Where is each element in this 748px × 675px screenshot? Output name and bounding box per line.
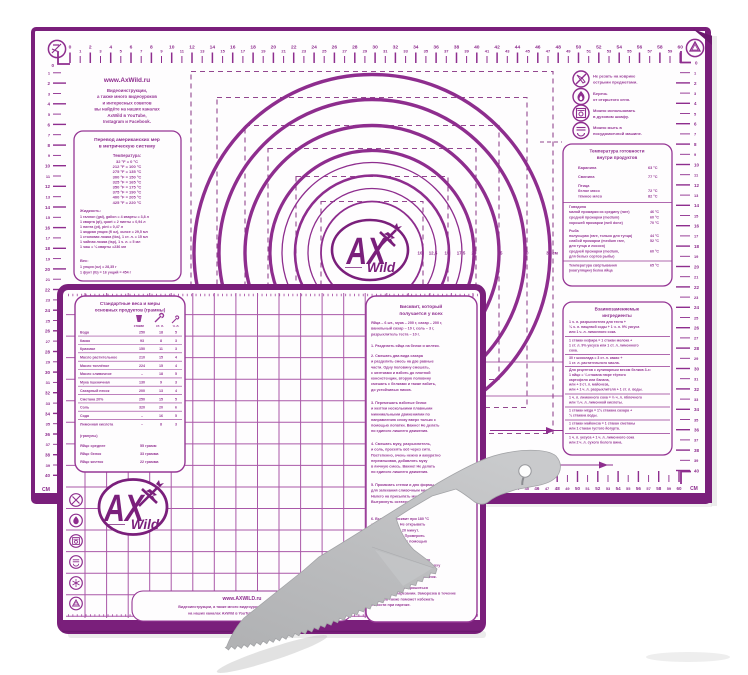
svg-text:в духовом шкафу.: в духовом шкафу. (593, 114, 629, 119)
svg-text:24: 24 (694, 305, 700, 310)
svg-text:Масло растительное: Масло растительное (80, 356, 117, 360)
svg-text:а также много видеоуроков: а также много видеоуроков (97, 94, 157, 99)
svg-text:22 грамма: 22 грамма (140, 460, 159, 464)
svg-text:–: – (141, 422, 143, 426)
svg-text:20: 20 (159, 406, 163, 410)
svg-text:или + 3 ст. л. майонеза,: или + 3 ст. л. майонеза, (569, 383, 609, 387)
svg-text:Перевод американских мер: Перевод американских мер (94, 137, 160, 143)
svg-text:44 °C: 44 °C (650, 234, 659, 238)
svg-text:4: 4 (109, 45, 112, 51)
svg-text:210: 210 (139, 356, 145, 360)
svg-text:44: 44 (515, 45, 521, 51)
svg-text:17,5: 17,5 (457, 251, 466, 256)
svg-text:55 грамм: 55 грамм (140, 444, 157, 448)
svg-text:15: 15 (159, 364, 163, 368)
svg-text:49: 49 (566, 49, 571, 54)
svg-text:72 °C: 72 °C (648, 189, 658, 193)
svg-text:15: 15 (159, 356, 163, 360)
svg-text:Яйцо среднее: Яйцо среднее (80, 444, 106, 448)
svg-text:до устойчивых пиков.: до устойчивых пиков. (371, 388, 412, 392)
svg-text:1 стакан майонеза = 1 стакан с: 1 стакан майонеза = 1 стакан сметаны (569, 422, 635, 426)
svg-text:разрыхлитель теста – 10 г.: разрыхлитель теста – 10 г. (371, 332, 420, 336)
svg-text:60 °C: 60 °C (650, 250, 659, 254)
svg-text:36: 36 (433, 45, 439, 51)
svg-text:сока.: сока. (569, 348, 578, 352)
svg-text:32: 32 (694, 387, 700, 392)
svg-text:для тунца и лосося): для тунца и лосося) (569, 244, 606, 248)
svg-text:16: 16 (230, 45, 236, 51)
svg-text:ч. л.: ч. л. (173, 324, 180, 328)
svg-text:или + 1 ч. л. разрыхлителя + 1: или + 1 ч. л. разрыхлителя + 1 ст. л. во… (569, 388, 643, 392)
svg-text:10: 10 (418, 251, 423, 256)
svg-text:Говядина: Говядина (569, 205, 587, 209)
svg-text:–: – (141, 372, 143, 376)
svg-text:12: 12 (45, 184, 51, 189)
svg-text:помощью лопатки. Важно! Не дел: помощью лопатки. Важно! Не делать (371, 424, 440, 428)
svg-text:или 1 ч. л. лимонного сока.: или 1 ч. л. лимонного сока. (569, 330, 616, 334)
svg-text:26: 26 (694, 326, 700, 331)
svg-text:13: 13 (159, 389, 163, 393)
svg-text:Температура готовности: Температура готовности (589, 149, 644, 154)
svg-text:32: 32 (45, 391, 51, 396)
svg-text:1 галлон (gal), gallon = 4 ква: 1 галлон (gal), gallon = 4 кварты = 3,8 … (80, 215, 150, 219)
svg-text:47: 47 (546, 49, 551, 54)
svg-text:53: 53 (607, 49, 612, 54)
svg-text:с желтками и взбить до плотной: с желтками и взбить до плотной (371, 371, 431, 375)
svg-text:AxWild в YouTube,: AxWild в YouTube, (107, 113, 146, 118)
svg-text:ингредиенты: ингредиенты (602, 313, 632, 318)
svg-text:Стандартные веса и меры: Стандартные веса и меры (100, 301, 160, 306)
svg-text:33 грамма: 33 грамма (140, 452, 159, 456)
svg-text:5: 5 (175, 397, 177, 401)
svg-text:10: 10 (169, 45, 175, 51)
svg-text:Свинина: Свинина (578, 175, 595, 179)
svg-text:43: 43 (505, 49, 510, 54)
svg-text:77 °C: 77 °C (648, 175, 658, 179)
svg-text:ни единого лишнего движения.: ни единого лишнего движения. (371, 429, 428, 433)
svg-text:полусырая (rare, только для ту: полусырая (rare, только для тунца) (569, 234, 633, 238)
svg-text:1 чайная ложка (tsp), 1 ч. л.: 1 чайная ложка (tsp), 1 ч. л. = 5 мл (80, 240, 141, 244)
svg-text:Постепенно, очень нежно и акку: Постепенно, очень нежно и аккуратно (371, 453, 441, 457)
svg-text:Птица: Птица (578, 184, 590, 188)
svg-text:посудомоечной машине.: посудомоечной машине. (593, 131, 642, 136)
svg-text:18: 18 (159, 372, 163, 376)
svg-text:31: 31 (383, 49, 388, 54)
svg-text:средней прожарки (medium): средней прожарки (medium) (569, 216, 620, 220)
svg-text:15: 15 (220, 49, 225, 54)
svg-text:34: 34 (45, 411, 51, 416)
svg-text:и разделить смесь на две равны: и разделить смесь на две равные (371, 360, 434, 364)
svg-text:48: 48 (555, 486, 561, 491)
svg-text:получается у всех: получается у всех (399, 312, 443, 317)
svg-text:8: 8 (160, 339, 162, 343)
svg-text:24: 24 (311, 45, 317, 51)
svg-text:10: 10 (45, 164, 51, 169)
svg-text:Крахмал: Крахмал (80, 347, 96, 351)
svg-text:37: 37 (46, 442, 50, 447)
svg-text:4: 4 (175, 356, 177, 360)
svg-text:Сахарный песок: Сахарный песок (80, 389, 110, 393)
svg-text:1 кварта (qt), quart = 2 пинты: 1 кварта (qt), quart = 2 пинты = 0,94 л (80, 220, 146, 224)
svg-text:хорошей прожарки (well done): хорошей прожарки (well done) (569, 221, 624, 225)
svg-text:Instagram и Facebook.: Instagram и Facebook. (103, 119, 151, 124)
svg-text:6: 6 (130, 45, 133, 51)
svg-text:46: 46 (534, 486, 540, 491)
svg-text:Баранина: Баранина (578, 166, 597, 170)
svg-text:12,5: 12,5 (429, 251, 438, 256)
svg-text:7: 7 (694, 132, 696, 137)
svg-text:Лимонная кислота: Лимонная кислота (80, 422, 114, 426)
svg-text:20: 20 (694, 264, 700, 269)
svg-text:ст. л.: ст. л. (156, 324, 164, 328)
svg-text:5: 5 (175, 372, 177, 376)
svg-text:58: 58 (657, 45, 663, 51)
svg-text:250: 250 (139, 397, 145, 401)
svg-text:224: 224 (139, 364, 145, 368)
svg-text:–: – (141, 414, 143, 418)
svg-text:50: 50 (575, 486, 581, 491)
svg-text:Яйцо желток: Яйцо желток (80, 460, 103, 464)
svg-text:или 2 ч. л. сухого белого вина: или 2 ч. л. сухого белого вина. (569, 440, 622, 444)
svg-text:Сметана 20%: Сметана 20% (80, 397, 104, 401)
svg-text:32: 32 (393, 45, 399, 51)
svg-text:Мука пшеничная: Мука пшеничная (80, 381, 110, 385)
svg-text:56: 56 (637, 45, 643, 51)
svg-text:или ¼ ч. л. лимонной кислоты.: или ¼ ч. л. лимонной кислоты. (569, 400, 623, 404)
svg-text:для белых сортов рыбы): для белых сортов рыбы) (569, 255, 615, 259)
svg-text:60: 60 (676, 486, 682, 491)
svg-text:части. Одну половину смешать,: части. Одну половину смешать, (371, 365, 430, 369)
svg-text:18: 18 (159, 331, 163, 335)
svg-text:Можно мыть в: Можно мыть в (593, 125, 622, 130)
svg-text:320: 320 (139, 406, 145, 410)
svg-text:70 °C: 70 °C (650, 221, 659, 225)
svg-text:3: 3 (175, 339, 177, 343)
svg-text:65 °C: 65 °C (650, 264, 659, 268)
svg-text:ванильный сахар – 10 г, соль –: ванильный сахар – 10 г, соль – 3 г, (371, 327, 434, 331)
svg-text:40: 40 (45, 473, 51, 478)
svg-text:1 стакан мёда = 1¼ стакана сах: 1 стакан мёда = 1¼ стакана сахара + (569, 409, 632, 413)
svg-text:ни единого лишнего движения.: ни единого лишнего движения. (371, 470, 428, 474)
svg-text:1. Разделить яйца на белки и: 1. Разделить яйца на белки и желтки. (371, 344, 440, 348)
svg-text:57: 57 (647, 49, 652, 54)
svg-text:18: 18 (694, 244, 700, 249)
svg-text:1 пинта (pt), pint = 0,47 л: 1 пинта (pt), pint = 0,47 л (80, 225, 124, 229)
svg-text:Температура:: Температура: (113, 153, 141, 158)
svg-text:0: 0 (69, 45, 72, 51)
svg-text:33: 33 (403, 49, 408, 54)
svg-text:перемешивая, добавлять муку: перемешивая, добавлять муку (371, 459, 428, 463)
svg-text:8: 8 (150, 45, 153, 51)
svg-text:1 фунт (lb) = 16 унций = 454 г: 1 фунт (lb) = 16 унций = 454 г (80, 271, 132, 275)
svg-text:малой прожарки из средину (rar: малой прожарки из средину (rare) (569, 210, 630, 214)
svg-text:38: 38 (45, 453, 51, 458)
svg-text:консистенции, вторую половину: консистенции, вторую половину (371, 377, 432, 381)
svg-text:82 °C: 82 °C (648, 195, 658, 199)
svg-text:16: 16 (159, 414, 163, 418)
svg-text:Беречь: Беречь (593, 91, 608, 96)
svg-text:47: 47 (545, 486, 549, 491)
svg-text:35: 35 (424, 49, 429, 54)
svg-text:1 чаш = ¼ кварты =236 мл: 1 чаш = ¼ кварты =236 мл (80, 245, 127, 249)
svg-text:Яйца – 6 шт., мука – 200 г, са: Яйца – 6 шт., мука – 200 г, сахар – 200 … (371, 321, 442, 325)
svg-text:30: 30 (45, 370, 51, 375)
svg-text:и соль, просеять всё через сит: и соль, просеять всё через сито. (371, 448, 431, 452)
svg-text:45: 45 (525, 49, 530, 54)
svg-text:острыми предметами.: острыми предметами. (593, 80, 637, 85)
svg-text:60 °C: 60 °C (650, 216, 659, 220)
svg-text:Wild: Wild (367, 260, 396, 275)
svg-text:52: 52 (596, 45, 602, 51)
svg-text:17: 17 (694, 234, 698, 239)
svg-text:54: 54 (616, 45, 622, 51)
svg-text:59: 59 (668, 49, 673, 54)
svg-text:стакан: стакан (134, 324, 144, 328)
svg-text:41: 41 (485, 49, 490, 54)
svg-text:60: 60 (677, 45, 683, 51)
svg-text:белое мясо: белое мясо (578, 189, 600, 193)
svg-text:27: 27 (46, 339, 50, 344)
svg-text:3: 3 (175, 422, 177, 426)
svg-text:36: 36 (694, 428, 700, 433)
svg-text:28: 28 (694, 346, 700, 351)
svg-text:36: 36 (45, 432, 51, 437)
svg-text:38: 38 (694, 448, 700, 453)
svg-text:Масло сливочное: Масло сливочное (80, 372, 112, 376)
svg-text:14: 14 (45, 205, 51, 210)
svg-text:1 ст. л. растительного масла.: 1 ст. л. растительного масла. (569, 361, 620, 365)
svg-text:17: 17 (241, 49, 246, 54)
svg-text:Wild: Wild (131, 517, 160, 532)
svg-text:25: 25 (498, 251, 503, 256)
svg-text:40: 40 (474, 45, 480, 51)
svg-text:30: 30 (372, 45, 378, 51)
svg-text:93: 93 (140, 339, 144, 343)
svg-text:14: 14 (210, 45, 216, 51)
svg-text:20: 20 (472, 251, 477, 256)
svg-text:5: 5 (175, 414, 177, 418)
svg-text:26: 26 (332, 45, 338, 51)
svg-text:34: 34 (413, 45, 419, 51)
svg-text:40: 40 (694, 468, 700, 473)
svg-text:12: 12 (189, 45, 195, 51)
svg-text:в яичную смесь. Важно! Не дела: в яичную смесь. Важно! Не делать (371, 465, 436, 469)
svg-text:38: 38 (454, 45, 460, 51)
svg-text:www.AxWild.ru: www.AxWild.ru (103, 77, 150, 84)
svg-text:22: 22 (291, 45, 297, 51)
svg-text:картофеля или банана,: картофеля или банана, (569, 378, 610, 382)
svg-text:СМ: СМ (690, 486, 698, 492)
svg-text:1 стакан кефира = 1 стакан мол: 1 стакан кефира = 1 стакан молока + (569, 339, 632, 343)
svg-text:(коагуляции) белка яйца: (коагуляции) белка яйца (569, 269, 614, 273)
svg-text:Масло топлёное: Масло топлёное (80, 364, 109, 368)
svg-text:250: 250 (139, 331, 145, 335)
svg-text:15: 15 (159, 397, 163, 401)
svg-text:57: 57 (646, 486, 650, 491)
svg-text:СМ: СМ (42, 487, 50, 493)
svg-text:Какао: Какао (80, 339, 91, 343)
svg-text:основных продуктов (граммы): основных продуктов (граммы) (95, 308, 166, 313)
svg-text:24: 24 (45, 308, 51, 313)
svg-text:48: 48 (555, 45, 561, 51)
svg-text:4. Смешать муку, разрыхлитель: 4. Смешать муку, разрыхлитель, (371, 442, 431, 446)
svg-text:34: 34 (694, 407, 700, 412)
svg-text:130: 130 (139, 381, 145, 385)
svg-text:12: 12 (694, 183, 700, 188)
svg-text:37: 37 (444, 49, 449, 54)
svg-text:Яйцо белок: Яйцо белок (80, 452, 101, 456)
svg-text:150: 150 (139, 347, 145, 351)
svg-text:1 ст. л. 9% уксуса или 1 ст. л: 1 ст. л. 9% уксуса или 1 ст. л. лимонног… (569, 343, 639, 347)
svg-text:Вода: Вода (80, 331, 90, 335)
svg-text:425 °F = 220 °C: 425 °F = 220 °C (113, 200, 142, 205)
svg-text:3. Перемешать взбитые белки: 3. Перемешать взбитые белки (371, 401, 427, 405)
svg-text:29: 29 (363, 49, 368, 54)
svg-text:Видеоинструкции,: Видеоинструкции, (107, 88, 147, 93)
svg-text:1 ч. л. уксуса + 1 ч. л. лимон: 1 ч. л. уксуса + 1 ч. л. лимонного сока (569, 436, 634, 440)
svg-text:2: 2 (89, 45, 92, 51)
svg-text:средней прожарки (medium,: средней прожарки (medium, (569, 250, 619, 254)
svg-text:23: 23 (302, 49, 307, 54)
svg-text:или 1 стакан густого йогурта.: или 1 стакан густого йогурта. (569, 426, 620, 430)
svg-text:16: 16 (694, 224, 700, 229)
svg-text:18: 18 (45, 246, 51, 251)
svg-text:28: 28 (45, 349, 51, 354)
svg-text:1 столовая ложка (tbs), 1 ст.: 1 столовая ложка (tbs), 1 ст. л. = 15 мл (80, 235, 148, 239)
svg-text:63 °C: 63 °C (648, 166, 658, 170)
svg-text:5. Промазать стенки и дно фор: 5. Промазать стенки и дно формы (371, 483, 434, 487)
svg-text:50: 50 (576, 45, 582, 51)
svg-text:15: 15 (445, 251, 450, 256)
svg-text:18: 18 (250, 45, 256, 51)
svg-text:4: 4 (175, 389, 177, 393)
svg-text:6: 6 (175, 406, 177, 410)
svg-text:направлению снизу вверх только: направлению снизу вверх только с (371, 418, 436, 422)
svg-text:30 г шоколада = 3 ст. л. какао: 30 г шоколада = 3 ст. л. какао + (569, 356, 622, 360)
svg-text:37: 37 (694, 438, 698, 443)
svg-text:Рыба: Рыба (569, 229, 580, 233)
svg-text:Не резать на коврике: Не резать на коврике (593, 74, 636, 79)
svg-text:20: 20 (271, 45, 277, 51)
svg-text:¼ ч. л. пищевой соды + 1 ч. л.: ¼ ч. л. пищевой соды + 1 ч. л. 9% уксуса (569, 325, 639, 329)
svg-text:Можно использовать: Можно использовать (593, 108, 636, 113)
svg-text:и интересных советов: и интересных советов (102, 100, 151, 105)
svg-text:1 яйцо = ¼ стакана пюре тёртог: 1 яйцо = ¼ стакана пюре тёртого (569, 373, 626, 377)
svg-text:1 жидкая унция (fl oz), ounce: 1 жидкая унция (fl oz), ounce = 29,5 мл (80, 230, 149, 234)
svg-text:26: 26 (45, 329, 51, 334)
svg-text:52 °C: 52 °C (650, 239, 659, 243)
svg-text:в метрическую систему: в метрическую систему (99, 145, 156, 150)
svg-text:55: 55 (627, 49, 632, 54)
svg-text:46: 46 (535, 45, 541, 51)
svg-text:тёмное мясо: тёмное мясо (578, 195, 603, 199)
svg-text:внутри продуктов: внутри продуктов (597, 155, 638, 160)
svg-text:35 см: 35 см (546, 251, 558, 256)
svg-text:1 ч. л. лимонного сока = ½ ч.: 1 ч. л. лимонного сока = ½ ч. л. яблочно… (569, 396, 642, 400)
svg-text:22: 22 (45, 287, 51, 292)
svg-text:16: 16 (45, 226, 51, 231)
svg-text:58: 58 (656, 486, 662, 491)
svg-text:минимальными движениями по: минимальными движениями по (371, 412, 431, 416)
svg-text:17: 17 (46, 236, 50, 241)
svg-text:и желтки несколькими плавными: и желтки несколькими плавными (371, 407, 433, 411)
svg-text:www.AXWILD.ru: www.AXWILD.ru (222, 596, 262, 602)
svg-text:Жидкость:: Жидкость: (79, 208, 101, 213)
svg-text:25: 25 (322, 49, 327, 54)
svg-text:5: 5 (175, 331, 177, 335)
svg-text:вы найдёте на наших каналах: вы найдёте на наших каналах (94, 107, 160, 112)
svg-text:1 ч. л. разрыхлителя для теста: 1 ч. л. разрыхлителя для теста + (569, 320, 626, 324)
svg-text:7: 7 (48, 133, 50, 138)
svg-text:8: 8 (160, 422, 162, 426)
svg-text:11: 11 (159, 347, 163, 351)
svg-text:39: 39 (464, 49, 469, 54)
svg-text:10: 10 (694, 162, 700, 167)
svg-text:¼ стакана воды.: ¼ стакана воды. (569, 413, 598, 417)
svg-text:56: 56 (636, 486, 642, 491)
svg-text:Бисквит, который: Бисквит, который (400, 303, 442, 310)
svg-text:27: 27 (694, 336, 698, 341)
svg-text:Сода: Сода (80, 414, 90, 418)
svg-text:(гранулы): (гранулы) (80, 434, 98, 438)
svg-text:42: 42 (494, 45, 500, 51)
svg-text:9: 9 (160, 381, 162, 385)
svg-text:51: 51 (586, 49, 591, 54)
svg-text:19: 19 (261, 49, 266, 54)
svg-text:Для рецептов с кулинарным весо: Для рецептов с кулинарным весом белков 3… (569, 368, 651, 372)
svg-text:Вес:: Вес: (80, 258, 89, 263)
svg-text:200: 200 (139, 389, 145, 393)
svg-text:3: 3 (175, 381, 177, 385)
svg-text:1 унция (oz) = 28,35 г: 1 унция (oz) = 28,35 г (80, 265, 117, 269)
svg-text:Температура свёртывания: Температура свёртывания (569, 264, 617, 268)
svg-text:52: 52 (595, 486, 601, 491)
svg-text:20: 20 (45, 267, 51, 272)
svg-text:30: 30 (524, 251, 529, 256)
svg-text:от открытого огня.: от открытого огня. (593, 97, 630, 102)
svg-text:4: 4 (175, 364, 177, 368)
svg-text:30: 30 (694, 366, 700, 371)
svg-text:21: 21 (281, 49, 286, 54)
svg-text:слабой прожарки (medium rare,: слабой прожарки (medium rare, (569, 239, 625, 243)
svg-text:22: 22 (694, 285, 700, 290)
svg-text:27: 27 (342, 49, 347, 54)
svg-text:13: 13 (200, 49, 205, 54)
svg-text:Соль: Соль (80, 406, 90, 410)
svg-text:смешать с белками и также взби: смешать с белками и также взбить, (371, 382, 436, 386)
svg-text:3: 3 (175, 347, 177, 351)
svg-text:46 °C: 46 °C (650, 210, 659, 214)
svg-text:Взаимозаменяемые: Взаимозаменяемые (595, 307, 640, 312)
svg-text:54: 54 (616, 486, 622, 491)
svg-text:2. Смешать два вида сахара: 2. Смешать два вида сахара (371, 354, 424, 358)
svg-text:28: 28 (352, 45, 358, 51)
svg-text:14: 14 (694, 203, 700, 208)
